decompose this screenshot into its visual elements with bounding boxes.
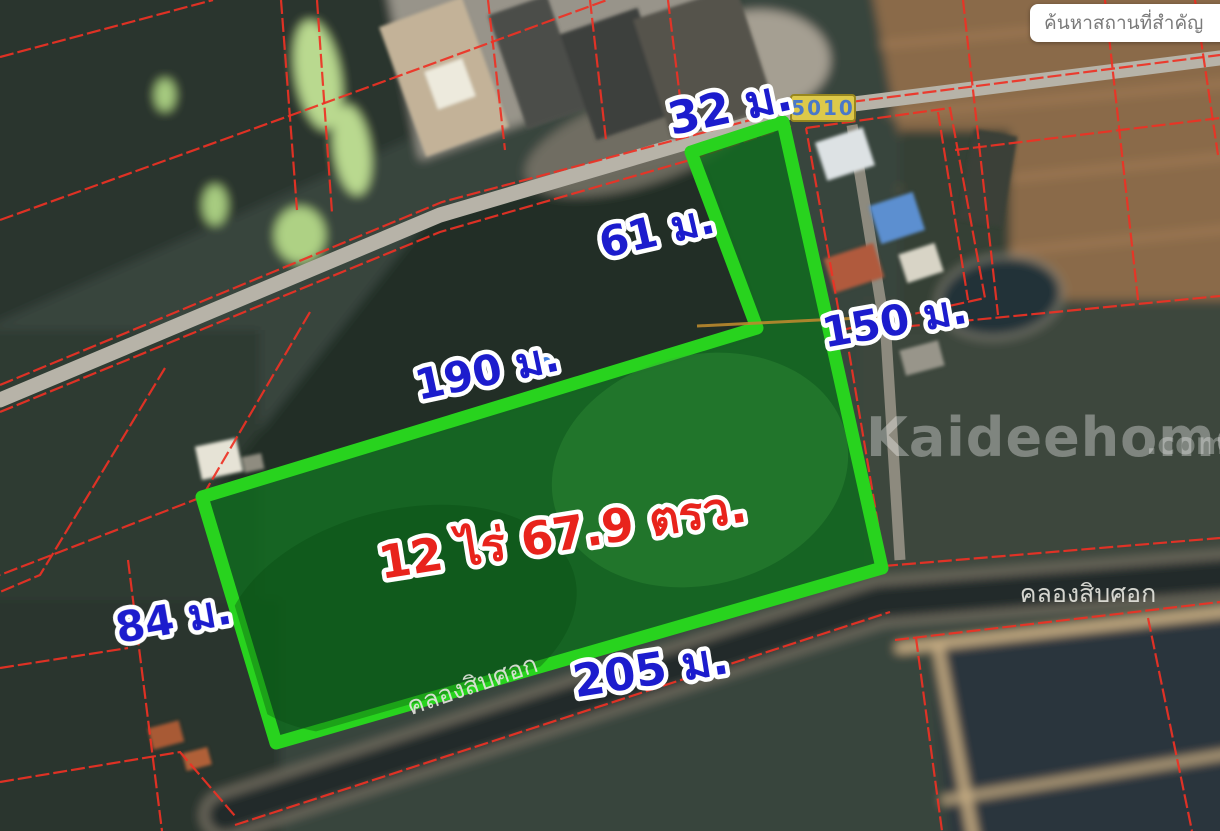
map-viewport[interactable]: 5010 32 ม. 61 ม. 150 ม. 190 ม. 84 ม. 205… xyxy=(0,0,1220,831)
search-input[interactable] xyxy=(1030,4,1220,42)
watermark-suffix: .com xyxy=(1146,427,1220,462)
satellite-map-canvas[interactable]: 5010 32 ม. 61 ม. 150 ม. 190 ม. 84 ม. 205… xyxy=(0,0,1220,831)
canal-name-label-right: คลองสิบศอก xyxy=(1020,579,1156,608)
route-badge-number: 5010 xyxy=(791,96,855,120)
route-badge: 5010 xyxy=(791,95,855,121)
